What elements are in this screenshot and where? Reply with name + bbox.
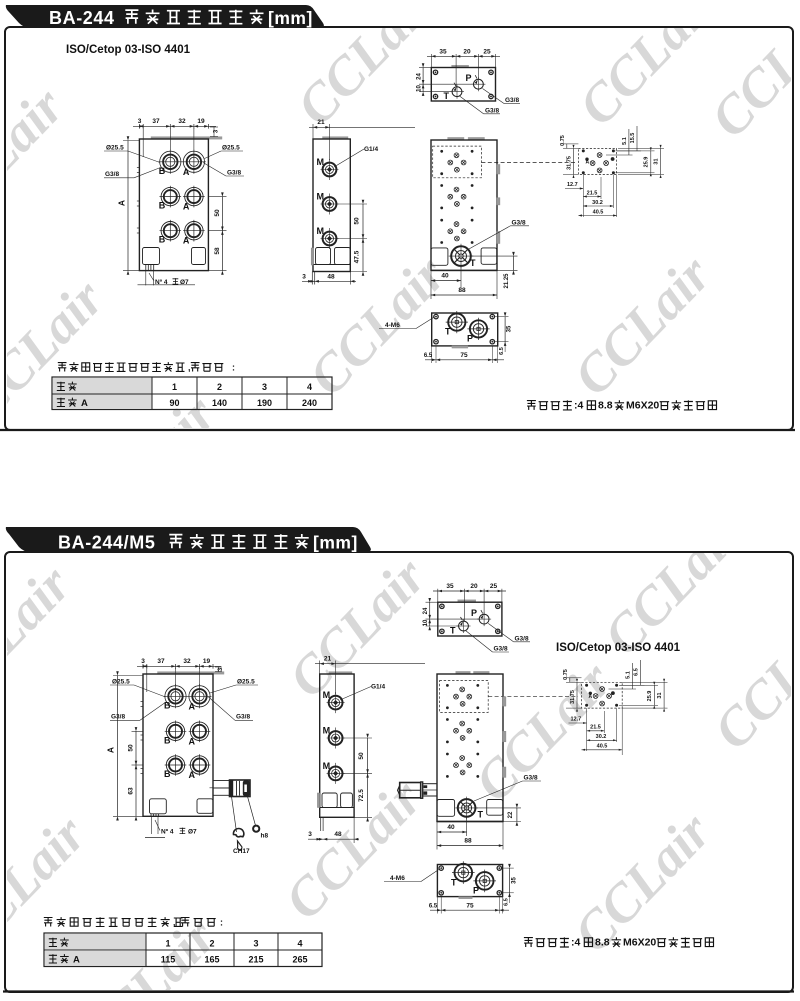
svg-text:G3/8: G3/8 xyxy=(494,646,508,653)
svg-text:12.7: 12.7 xyxy=(567,182,578,188)
svg-text:40.5: 40.5 xyxy=(593,209,604,215)
svg-text:G3/8: G3/8 xyxy=(227,170,241,177)
svg-text:4: 4 xyxy=(307,382,312,392)
svg-text:63: 63 xyxy=(127,787,134,795)
svg-text:3: 3 xyxy=(138,118,142,125)
svg-text:3: 3 xyxy=(308,831,312,838)
svg-text:3: 3 xyxy=(253,939,258,949)
svg-text:P: P xyxy=(467,334,473,344)
svg-text:h8: h8 xyxy=(261,833,269,840)
svg-text:47.5: 47.5 xyxy=(354,250,361,263)
svg-text:[mm]: [mm] xyxy=(313,533,358,553)
svg-text:30.2: 30.2 xyxy=(596,734,607,740)
svg-text:4-M6: 4-M6 xyxy=(385,322,400,329)
svg-text:Ø25.5: Ø25.5 xyxy=(106,145,124,152)
svg-text:M: M xyxy=(317,157,325,167)
svg-text:25: 25 xyxy=(483,48,491,55)
svg-text:35: 35 xyxy=(507,325,513,332)
svg-text:Ø7: Ø7 xyxy=(188,829,197,836)
svg-text:T: T xyxy=(444,91,450,101)
svg-text:CH17: CH17 xyxy=(233,848,250,855)
svg-text:A: A xyxy=(183,167,190,177)
svg-text:1: 1 xyxy=(165,939,170,949)
svg-text:25.9: 25.9 xyxy=(647,691,653,702)
svg-text:0.75: 0.75 xyxy=(560,135,566,146)
svg-text:Ø25.5: Ø25.5 xyxy=(237,679,255,686)
svg-text:72.5: 72.5 xyxy=(358,789,365,802)
svg-text:58: 58 xyxy=(214,247,221,255)
svg-text:19: 19 xyxy=(197,118,205,125)
svg-text::4: :4 xyxy=(574,400,583,412)
svg-text::4: :4 xyxy=(571,937,580,949)
svg-text:B: B xyxy=(164,700,171,710)
svg-text:6.5: 6.5 xyxy=(634,668,640,676)
svg-text:20: 20 xyxy=(463,48,471,55)
svg-text:B: B xyxy=(164,735,171,745)
svg-text:21.5: 21.5 xyxy=(587,190,598,196)
svg-text:T: T xyxy=(478,810,484,820)
svg-text:50: 50 xyxy=(127,744,134,752)
svg-text:A: A xyxy=(189,701,196,711)
svg-text:BA-244: BA-244 xyxy=(49,8,115,28)
svg-text:10: 10 xyxy=(423,619,429,626)
svg-text:21: 21 xyxy=(317,119,325,126)
svg-text:G3/8: G3/8 xyxy=(505,97,519,104)
svg-text:M6X20: M6X20 xyxy=(626,400,659,412)
svg-text:24: 24 xyxy=(423,607,429,614)
svg-text:T: T xyxy=(450,626,456,636)
svg-text:30.2: 30.2 xyxy=(592,200,603,206)
svg-text:3: 3 xyxy=(302,273,306,280)
svg-text:G3/8: G3/8 xyxy=(485,107,499,114)
svg-text:A: A xyxy=(586,160,590,166)
svg-text:A: A xyxy=(183,202,190,212)
svg-text:2: 2 xyxy=(209,939,214,949)
svg-text::: : xyxy=(220,918,223,928)
svg-text:P: P xyxy=(466,73,472,83)
svg-text:3: 3 xyxy=(262,382,267,392)
svg-text:90: 90 xyxy=(169,398,179,408)
svg-text:50: 50 xyxy=(358,752,365,760)
svg-text:37: 37 xyxy=(152,118,160,125)
svg-text:G3/8: G3/8 xyxy=(236,714,250,721)
svg-text:35: 35 xyxy=(511,877,517,884)
svg-text:[mm]: [mm] xyxy=(268,8,313,28)
svg-text:2: 2 xyxy=(217,382,222,392)
svg-text:20: 20 xyxy=(470,583,478,590)
svg-text:35: 35 xyxy=(446,583,454,590)
svg-text:A: A xyxy=(106,747,116,753)
svg-text:A: A xyxy=(589,694,593,700)
svg-text:T: T xyxy=(470,258,476,268)
svg-text:8.8: 8.8 xyxy=(595,937,610,949)
svg-text:240: 240 xyxy=(302,398,317,408)
svg-text:75: 75 xyxy=(466,902,474,909)
svg-text:48: 48 xyxy=(327,273,335,280)
svg-text:6.5: 6.5 xyxy=(429,903,438,909)
svg-text:G1/4: G1/4 xyxy=(364,146,378,153)
svg-text::: : xyxy=(232,363,235,373)
svg-text:4-M6: 4-M6 xyxy=(390,875,405,882)
svg-text:M6X20: M6X20 xyxy=(623,937,656,949)
svg-text:G1/4: G1/4 xyxy=(371,684,385,691)
svg-text:P: P xyxy=(471,608,477,618)
svg-text:ISO/Cetop 03-ISO 4401: ISO/Cetop 03-ISO 4401 xyxy=(66,44,191,56)
svg-text:6.5: 6.5 xyxy=(503,898,509,906)
svg-text:25: 25 xyxy=(490,583,498,590)
svg-text:A: A xyxy=(189,736,196,746)
svg-text:50: 50 xyxy=(214,209,221,217)
svg-text:40: 40 xyxy=(441,273,449,280)
svg-text:48: 48 xyxy=(334,831,342,838)
svg-text:G3/8: G3/8 xyxy=(515,635,529,642)
svg-text:Ø25.5: Ø25.5 xyxy=(222,145,240,152)
svg-text:21: 21 xyxy=(324,656,332,663)
svg-text:Nº 4: Nº 4 xyxy=(161,829,174,836)
svg-text:,: , xyxy=(173,918,176,928)
svg-text:88: 88 xyxy=(464,838,472,845)
svg-text:88: 88 xyxy=(458,287,466,294)
svg-text:6.5: 6.5 xyxy=(499,347,505,355)
svg-text:M: M xyxy=(323,761,331,771)
svg-text:M: M xyxy=(323,726,331,736)
svg-text:3: 3 xyxy=(141,658,145,665)
svg-text:215: 215 xyxy=(248,955,263,965)
svg-text:T: T xyxy=(445,327,451,337)
svg-text:165: 165 xyxy=(204,955,219,965)
svg-text:19: 19 xyxy=(203,658,211,665)
svg-text:12.7: 12.7 xyxy=(571,717,582,723)
svg-text:50: 50 xyxy=(354,217,361,225)
svg-text:,: , xyxy=(188,363,191,373)
svg-text:5.1: 5.1 xyxy=(622,137,628,145)
svg-text:5.1: 5.1 xyxy=(626,671,632,679)
svg-text:190: 190 xyxy=(257,398,272,408)
svg-text:6.5: 6.5 xyxy=(424,353,433,359)
svg-text:G3/8: G3/8 xyxy=(105,171,119,178)
svg-text:1: 1 xyxy=(172,382,177,392)
svg-text:A: A xyxy=(183,236,190,246)
svg-text:31: 31 xyxy=(657,692,663,698)
svg-text:75: 75 xyxy=(460,352,468,359)
svg-text:32: 32 xyxy=(178,118,186,125)
svg-text:21.5: 21.5 xyxy=(590,725,601,731)
svg-text:265: 265 xyxy=(292,955,307,965)
svg-text:A: A xyxy=(189,770,196,780)
svg-text:ISO/Cetop 03-ISO 4401: ISO/Cetop 03-ISO 4401 xyxy=(556,642,681,654)
svg-text:4: 4 xyxy=(297,939,302,949)
svg-text:B: B xyxy=(164,769,171,779)
svg-text:B: B xyxy=(159,235,166,245)
svg-text:G3/8: G3/8 xyxy=(111,714,125,721)
svg-text:A: A xyxy=(73,955,80,966)
svg-text:25.9: 25.9 xyxy=(644,157,650,168)
svg-text:140: 140 xyxy=(212,398,227,408)
svg-text:8.8: 8.8 xyxy=(598,400,613,412)
svg-text:31: 31 xyxy=(653,158,659,164)
svg-text:B: B xyxy=(159,201,166,211)
svg-text:40: 40 xyxy=(447,824,455,831)
svg-text:40.5: 40.5 xyxy=(597,744,608,750)
svg-text:M: M xyxy=(317,192,325,202)
svg-text:10: 10 xyxy=(416,85,422,92)
svg-text:G3/8: G3/8 xyxy=(512,220,526,227)
svg-text:A: A xyxy=(81,398,88,409)
svg-text:35: 35 xyxy=(439,48,447,55)
svg-text:21.25: 21.25 xyxy=(504,273,510,289)
svg-text:115: 115 xyxy=(161,955,176,965)
svg-text:Ø25.5: Ø25.5 xyxy=(112,679,130,686)
svg-text:BA-244/M5: BA-244/M5 xyxy=(58,533,155,553)
svg-text:31.75: 31.75 xyxy=(567,156,573,170)
svg-text:15.5: 15.5 xyxy=(630,133,636,144)
svg-text:32: 32 xyxy=(183,658,191,665)
svg-text:M: M xyxy=(317,226,325,236)
svg-text:24: 24 xyxy=(416,73,422,80)
svg-text:22: 22 xyxy=(508,811,514,818)
svg-text:0.75: 0.75 xyxy=(563,669,569,680)
svg-text:M: M xyxy=(323,690,331,700)
svg-text:G3/8: G3/8 xyxy=(524,775,538,782)
svg-text:T: T xyxy=(451,878,457,888)
svg-text:A: A xyxy=(117,200,127,206)
svg-text:P: P xyxy=(473,886,479,896)
svg-text:B: B xyxy=(159,166,166,176)
svg-text:37: 37 xyxy=(157,658,165,665)
svg-text:31.75: 31.75 xyxy=(570,690,576,704)
